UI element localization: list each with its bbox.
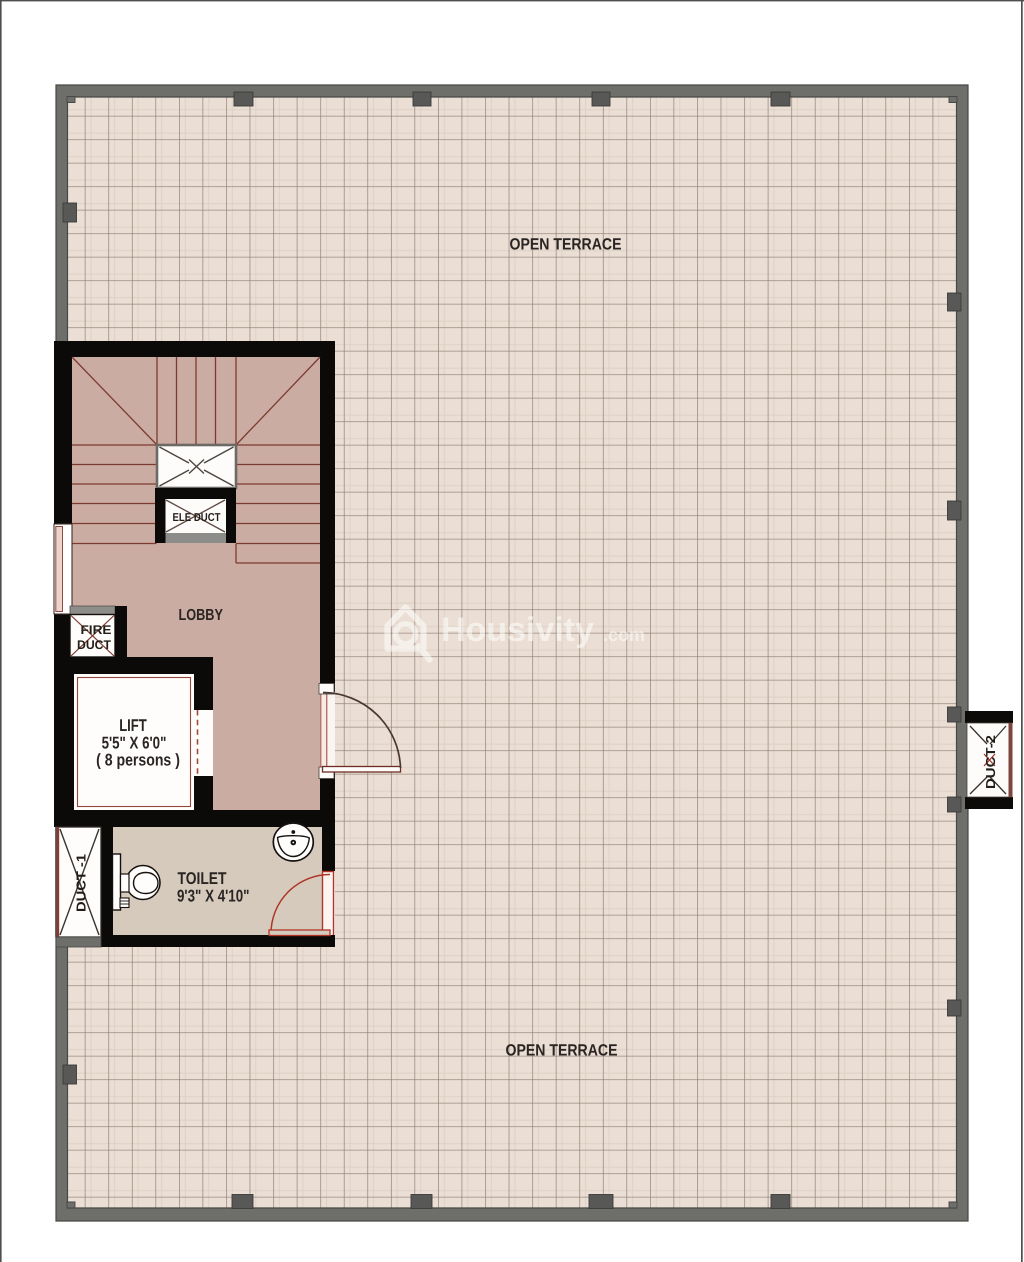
svg-text:OPEN TERRACE: OPEN TERRACE (506, 1041, 618, 1059)
svg-text:DUCT-2: DUCT-2 (983, 735, 998, 789)
svg-text:.com: .com (603, 625, 645, 645)
svg-text:DUCT: DUCT (77, 638, 111, 652)
svg-text:ELE DUCT: ELE DUCT (173, 512, 221, 524)
svg-text:LOBBY: LOBBY (178, 607, 223, 624)
svg-text:OPEN TERRACE: OPEN TERRACE (510, 235, 622, 253)
svg-text:( 8 persons ): ( 8 persons ) (96, 751, 180, 770)
svg-text:9'3" X 4'10": 9'3" X 4'10" (177, 887, 250, 906)
svg-text:5'5" X 6'0": 5'5" X 6'0" (102, 733, 167, 752)
svg-text:TOILET: TOILET (178, 869, 227, 888)
svg-text:LIFT: LIFT (119, 716, 147, 735)
svg-text:DUCT -1: DUCT -1 (74, 854, 89, 912)
svg-text:FIRE: FIRE (81, 623, 112, 637)
svg-text:Housivity: Housivity (441, 611, 594, 649)
